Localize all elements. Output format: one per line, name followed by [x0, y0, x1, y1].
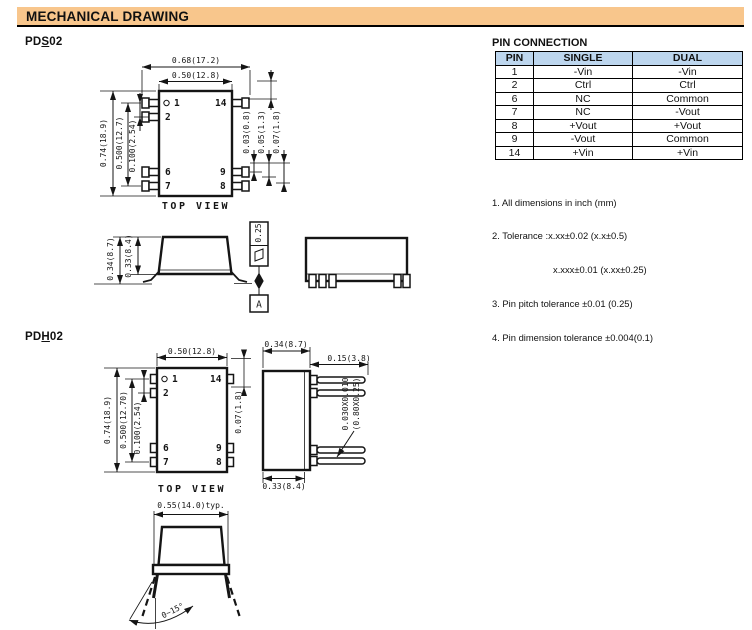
pin-number: 6 — [165, 167, 171, 178]
pin-number: 7 — [163, 457, 169, 468]
pin-number: 14 — [210, 374, 222, 385]
dim-label: 0.07(1.8) — [272, 110, 281, 153]
pds02-end-view — [306, 238, 410, 288]
pin-number: 2 — [163, 388, 169, 399]
pin-number: 9 — [220, 167, 226, 178]
pin-number: 8 — [216, 457, 222, 468]
pin-number: 7 — [165, 181, 171, 192]
pin-number: 1 — [174, 98, 180, 109]
pin-number: 8 — [220, 181, 226, 192]
dim-label: 0.74(18.9) — [103, 396, 112, 444]
flatness-value: 0.25 — [254, 223, 263, 242]
dim-label: 0.500(12.70) — [119, 391, 128, 449]
pin-number: 6 — [163, 443, 169, 454]
dim-label: 0.34(8.7) — [264, 340, 307, 349]
pdh02-top-view: 1 2 6 7 14 9 8 0.50(12.8) 0.74(18.9) 0.5… — [103, 347, 251, 495]
dim-label: 0~15° — [160, 601, 186, 620]
dim-label: 0.03(0.8) — [242, 110, 251, 153]
datum-label: A — [256, 300, 262, 311]
dim-label: 0.55(14.0)typ. — [157, 501, 224, 510]
dim-label: 0.05(1.3) — [257, 110, 266, 153]
dim-label: 0.68(17.2) — [172, 56, 220, 65]
view-caption: TOP VIEW — [158, 484, 226, 495]
mechanical-drawing-canvas: 1 2 6 7 14 9 8 0.68(17.2) 0.50(12.8) 0.7… — [0, 0, 752, 630]
dim-label: 0.34(8.7) — [106, 237, 115, 280]
dim-label: 0.33(8.4) — [262, 482, 305, 491]
dim-label: 0.74(18.9) — [99, 119, 108, 167]
datasheet-page: MECHANICAL DRAWING PDS02 PDH02 PIN CONNE… — [0, 0, 752, 630]
dim-label: 0.07(1.8) — [234, 390, 243, 433]
pin-number: 1 — [172, 374, 178, 385]
dim-label: 0.50(12.8) — [172, 71, 220, 80]
dim-label: 0.15(3.8) — [327, 354, 370, 363]
pin-number: 2 — [165, 112, 171, 123]
pin-number: 14 — [215, 98, 227, 109]
view-caption: TOP VIEW — [162, 201, 230, 212]
dim-label: 0.500(12.7) — [115, 117, 124, 170]
pin-number: 9 — [216, 443, 222, 454]
pds02-front-view: 0.34(8.7) 0.33(8.4) 0.25 A — [94, 222, 268, 312]
pds02-top-view: 1 2 6 7 14 9 8 0.68(17.2) 0.50(12.8) 0.7… — [99, 56, 290, 212]
dim-label: (0.80X0.25) — [352, 378, 361, 431]
dim-label: 0.50(12.8) — [168, 347, 216, 356]
dim-label: 0.33(8.4) — [124, 234, 133, 277]
pdh02-side-view: 0.34(8.7) 0.15(3.8) 0.030X0.010 (0.80X0.… — [262, 340, 370, 491]
pdh02-front-view: 0.55(14.0)typ. 0~15° — [129, 501, 240, 629]
dim-label: 0.100(2.54) — [128, 120, 137, 173]
dim-label: 0.030X0.010 — [341, 377, 350, 430]
dim-label: 0.100(2.54) — [133, 402, 142, 455]
